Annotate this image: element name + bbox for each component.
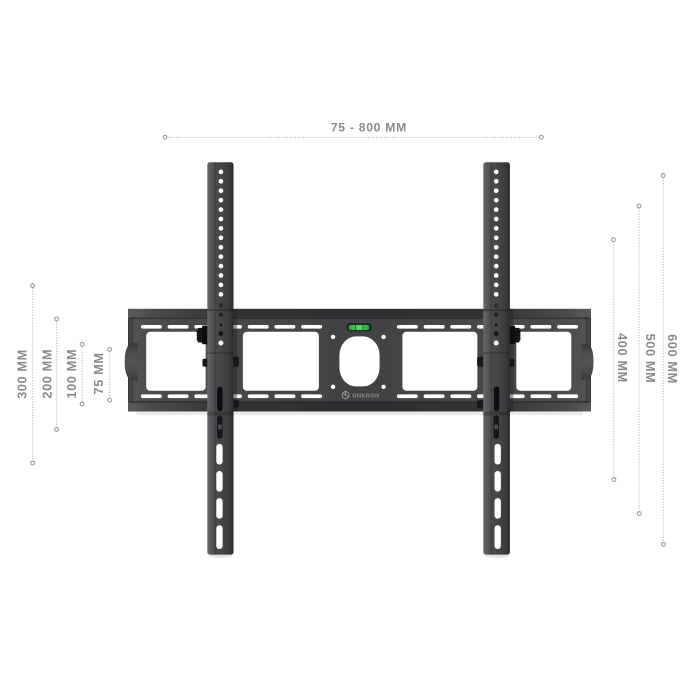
svg-text:400 MM: 400 MM [615, 333, 630, 383]
svg-text:ONKRON: ONKRON [352, 394, 379, 400]
svg-text:100 MM: 100 MM [64, 349, 79, 399]
svg-text:75 - 800 MM: 75 - 800 MM [331, 121, 407, 135]
svg-text:500 MM: 500 MM [643, 334, 658, 384]
svg-text:75 MM: 75 MM [91, 352, 106, 394]
svg-text:600 MM: 600 MM [665, 334, 680, 384]
svg-text:200 MM: 200 MM [40, 349, 55, 399]
svg-text:300 MM: 300 MM [15, 349, 30, 399]
